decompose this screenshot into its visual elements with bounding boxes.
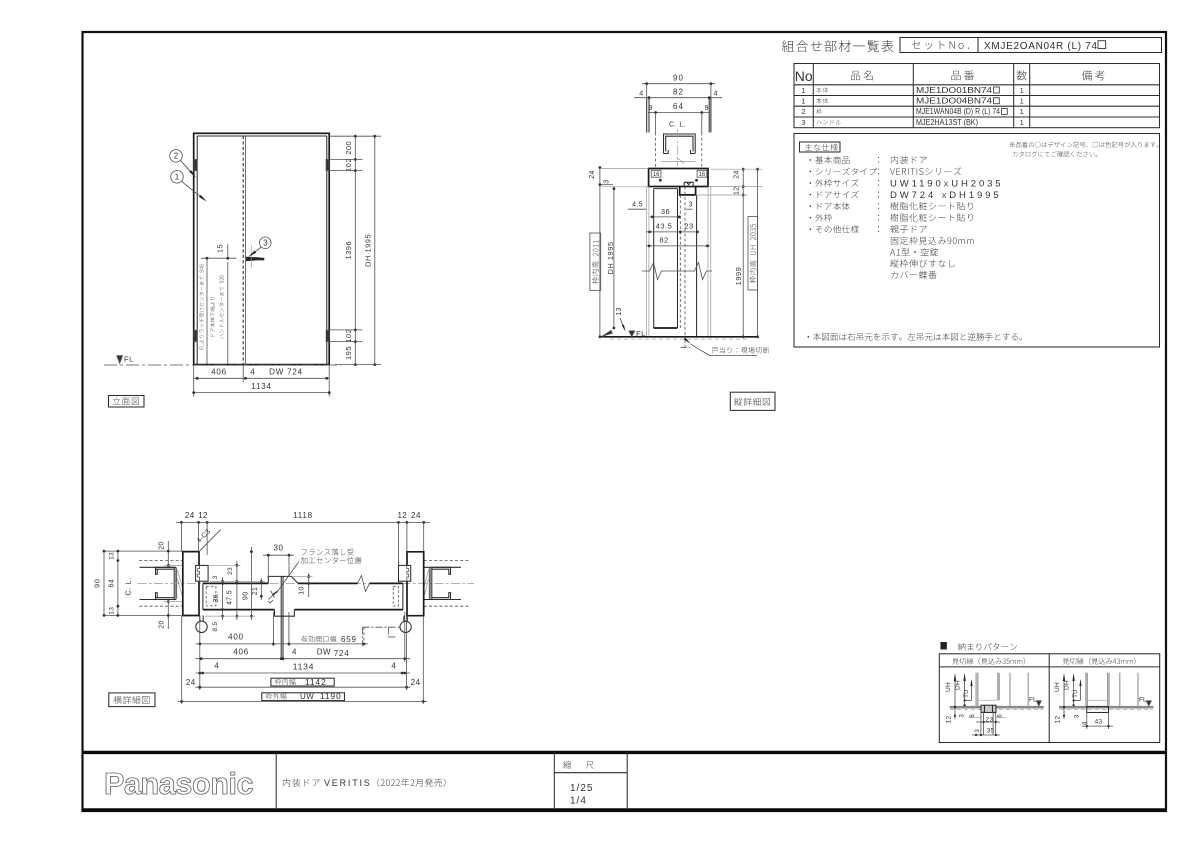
svg-text:FL: FL	[1029, 697, 1037, 704]
svg-text:3: 3	[263, 239, 268, 248]
svg-text:23: 23	[227, 567, 234, 575]
svg-text:24: 24	[411, 678, 421, 687]
svg-text:1: 1	[801, 86, 805, 95]
svg-text:2: 2	[174, 152, 179, 161]
svg-text:4-C3: 4-C3	[196, 528, 213, 545]
svg-text:1: 1	[175, 173, 180, 182]
svg-text:UH: UH	[945, 682, 952, 692]
svg-text:195: 195	[344, 346, 353, 360]
svg-text:406: 406	[211, 367, 227, 376]
svg-text:64: 64	[673, 102, 684, 111]
svg-text:43: 43	[1095, 719, 1103, 726]
svg-text:724: 724	[334, 649, 350, 658]
svg-text:1134: 1134	[293, 662, 314, 672]
svg-text:FL: FL	[636, 329, 646, 338]
svg-text:20: 20	[158, 541, 165, 549]
svg-text:C. L.: C. L.	[123, 577, 132, 595]
svg-text:13: 13	[108, 552, 115, 560]
svg-text:DW 724: DW 724	[269, 367, 303, 376]
svg-text:1: 1	[1020, 107, 1024, 116]
svg-text:FL: FL	[1139, 697, 1147, 704]
svg-text:DW724 XDH1995: DW724 XDH1995	[890, 190, 1002, 201]
svg-text:24: 24	[733, 170, 740, 178]
svg-text:12: 12	[946, 716, 953, 724]
svg-text:12: 12	[733, 187, 740, 195]
svg-text:36: 36	[213, 594, 220, 602]
svg-text:6: 6	[998, 714, 1004, 718]
svg-text:MJE1WAN04B (D) R (L) 74: MJE1WAN04B (D) R (L) 74	[916, 107, 1000, 116]
svg-text:1134: 1134	[251, 382, 271, 391]
svg-text:4: 4	[292, 647, 297, 656]
svg-text:8.5: 8.5	[212, 622, 219, 632]
svg-text:XMJE2OAN04R (L) 74: XMJE2OAN04R (L) 74	[984, 41, 1098, 52]
svg-text:90: 90	[673, 74, 684, 83]
svg-text:36: 36	[661, 207, 670, 216]
svg-text:35: 35	[987, 728, 995, 735]
svg-text:1396: 1396	[344, 241, 353, 260]
svg-text:VERITIS: VERITIS	[324, 778, 372, 788]
svg-text:200: 200	[344, 141, 353, 155]
svg-text:1190: 1190	[320, 691, 341, 701]
svg-text:47.5: 47.5	[226, 590, 233, 605]
svg-text:4: 4	[1083, 721, 1089, 725]
svg-text:DH 1995: DH 1995	[363, 234, 372, 267]
svg-text:659: 659	[341, 635, 357, 644]
svg-text:6: 6	[970, 714, 976, 718]
svg-text:9: 9	[705, 105, 709, 112]
svg-text:1: 1	[1020, 86, 1024, 95]
svg-text:10: 10	[299, 586, 306, 594]
svg-text:TU: TU	[964, 689, 970, 698]
svg-text:UH: UH	[1054, 682, 1061, 692]
svg-text:3: 3	[212, 575, 219, 579]
svg-text:1999: 1999	[734, 267, 743, 286]
svg-text:23: 23	[986, 717, 994, 724]
svg-text:UW1190XUH2035: UW1190XUH2035	[890, 178, 1004, 189]
svg-text:3: 3	[959, 714, 965, 718]
svg-text:24: 24	[185, 511, 195, 520]
svg-text:12: 12	[1055, 716, 1062, 724]
svg-text:DH 1995: DH 1995	[606, 241, 615, 274]
svg-text:1118: 1118	[293, 511, 313, 520]
svg-text:4.5: 4.5	[632, 202, 643, 209]
svg-text:406: 406	[233, 647, 249, 656]
svg-text:102: 102	[344, 158, 353, 172]
svg-text:1: 1	[1020, 97, 1024, 106]
svg-text:102: 102	[344, 329, 353, 343]
svg-text:4: 4	[214, 661, 219, 670]
svg-text:4: 4	[714, 90, 718, 97]
svg-text:24: 24	[411, 511, 421, 520]
svg-text:DW: DW	[317, 647, 331, 656]
svg-text:64: 64	[108, 579, 115, 587]
svg-text:23: 23	[684, 221, 693, 230]
svg-text:3: 3	[689, 202, 693, 209]
svg-text:UW: UW	[300, 692, 314, 701]
svg-text:4: 4	[250, 367, 255, 376]
svg-text:82: 82	[673, 87, 684, 96]
svg-text:3: 3	[1075, 714, 1081, 718]
svg-text:1: 1	[1020, 118, 1024, 127]
svg-text:21: 21	[252, 587, 259, 595]
svg-text:15: 15	[216, 244, 225, 253]
svg-text:30: 30	[274, 543, 284, 552]
svg-text:90: 90	[93, 579, 102, 588]
svg-text:24: 24	[589, 170, 596, 178]
svg-text:1: 1	[801, 97, 805, 106]
svg-text:20: 20	[158, 620, 165, 628]
svg-text:MJE1DO01BN74: MJE1DO01BN74	[916, 86, 993, 95]
svg-text:1142: 1142	[305, 677, 326, 687]
svg-text:3: 3	[603, 180, 610, 184]
svg-text:MJE2HA13ST (BK): MJE2HA13ST (BK)	[916, 118, 978, 127]
svg-text:43.5: 43.5	[656, 221, 673, 230]
svg-text:TU: TU	[1073, 689, 1079, 698]
svg-text:90: 90	[241, 591, 250, 600]
svg-text:82: 82	[659, 235, 668, 244]
svg-text:13: 13	[616, 307, 623, 315]
svg-text:DH: DH	[955, 680, 962, 690]
svg-text:16: 16	[699, 172, 706, 178]
svg-text:16: 16	[653, 172, 660, 178]
svg-text:MJE1DO04BN74: MJE1DO04BN74	[916, 97, 993, 106]
svg-text:12: 12	[198, 511, 208, 520]
svg-text:4: 4	[391, 661, 396, 670]
svg-text:400: 400	[228, 633, 244, 642]
svg-text:DH: DH	[1064, 680, 1071, 690]
svg-text:12: 12	[398, 511, 408, 520]
svg-text:3: 3	[975, 729, 981, 733]
svg-text:No: No	[795, 68, 813, 84]
svg-text:Panasonic: Panasonic	[104, 767, 254, 801]
svg-text:13: 13	[108, 607, 115, 615]
svg-text:2: 2	[801, 107, 805, 116]
svg-text:24: 24	[186, 678, 196, 687]
svg-text:1/4: 1/4	[570, 796, 587, 807]
svg-text:C. L.: C. L.	[669, 122, 686, 129]
svg-text:4: 4	[639, 90, 643, 97]
svg-text:3: 3	[801, 118, 805, 127]
svg-text:1/25: 1/25	[570, 783, 593, 794]
svg-text:FL: FL	[124, 355, 134, 364]
